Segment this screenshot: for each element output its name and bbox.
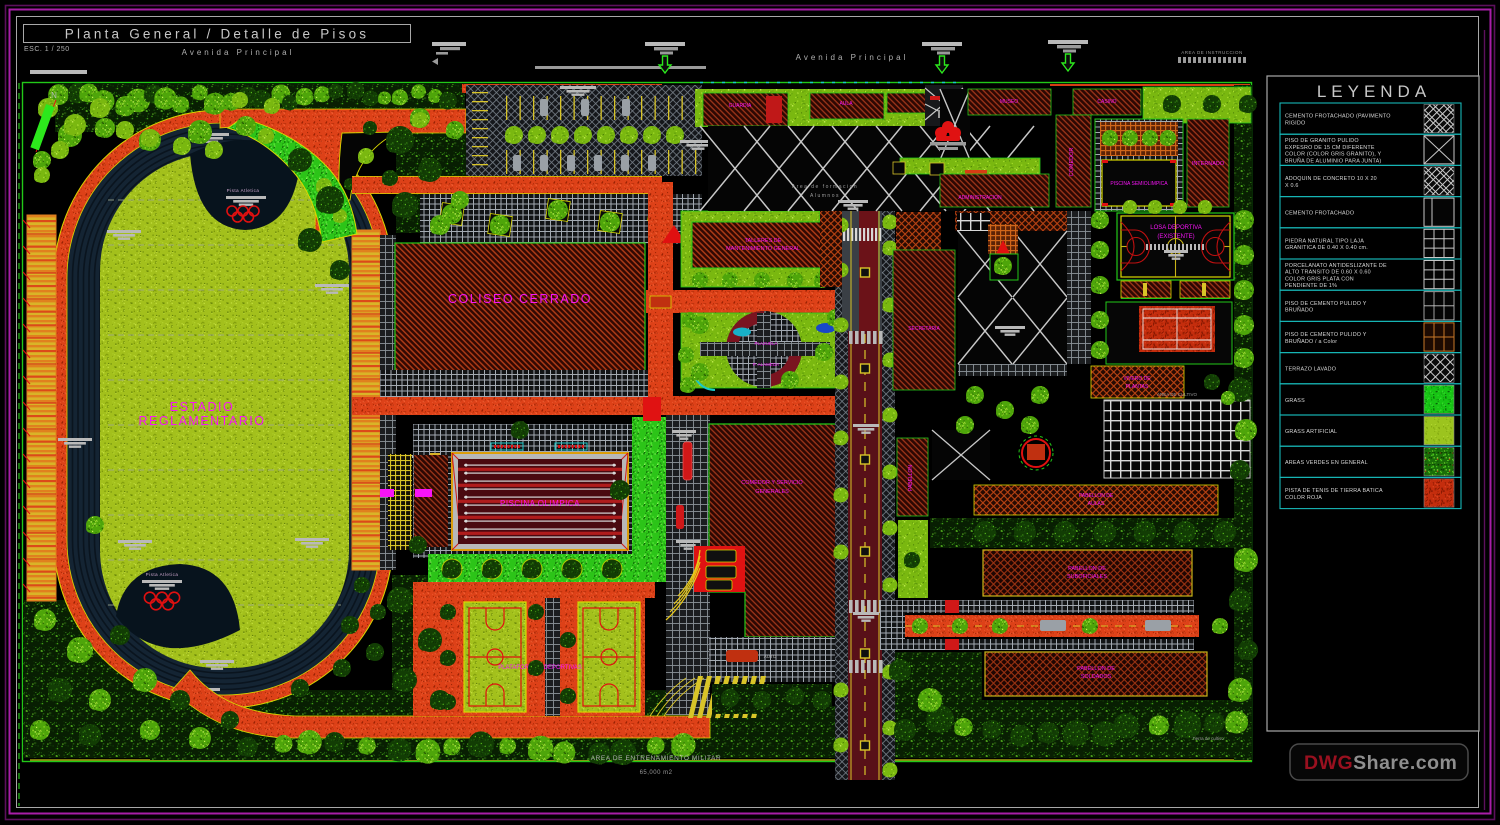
- svg-text:LOSA DEPORTIVA: LOSA DEPORTIVA: [1150, 225, 1201, 231]
- svg-text:EXPESRO DE 15 CM DIFERENTE: EXPESRO DE 15 CM DIFERENTE: [1285, 145, 1375, 151]
- svg-text:AULAS: AULAS: [1088, 501, 1105, 507]
- svg-text:CEMENTO FROTACHADO: CEMENTO FROTACHADO: [1285, 211, 1354, 217]
- svg-text:PISCINA SEMIOLIMPICA: PISCINA SEMIOLIMPICA: [1110, 181, 1168, 187]
- svg-text:Area de formacion: Area de formacion: [792, 184, 858, 190]
- svg-text:TALLERES DE: TALLERES DE: [745, 238, 782, 244]
- svg-text:Planta General / Detalle de Pi: Planta General / Detalle de Pisos: [65, 27, 369, 42]
- svg-text:PISCINA OLIMPICA: PISCINA OLIMPICA: [500, 499, 580, 508]
- svg-text:MANTENIMIENTO GENERAL: MANTENIMIENTO GENERAL: [726, 246, 800, 252]
- svg-text:CASINO: CASINO: [1097, 99, 1116, 105]
- svg-text:PISO DE CEMENTO PULIDO Y: PISO DE CEMENTO PULIDO Y: [1285, 301, 1367, 307]
- svg-text:MUSEO: MUSEO: [1000, 99, 1018, 105]
- svg-text:ADMINISTRACION: ADMINISTRACION: [958, 195, 1002, 201]
- svg-text:AUTO: AUTO: [764, 654, 777, 659]
- svg-text:GRANITICA DE 0.40 X 0.40 cm.: GRANITICA DE 0.40 X 0.40 cm.: [1285, 245, 1368, 251]
- svg-text:RIGIDO: RIGIDO: [1285, 120, 1305, 126]
- svg-text:PABELLON DE: PABELLON DE: [1068, 566, 1106, 572]
- svg-text:TERRAZO LAVADO: TERRAZO LAVADO: [1285, 367, 1336, 373]
- svg-text:X 0.6: X 0.6: [1285, 183, 1299, 189]
- svg-text:CEMENTO FROTACHADO (PAVIMENTO: CEMENTO FROTACHADO (PAVIMENTO: [1285, 114, 1391, 120]
- svg-text:BRUÑADO / a Color: BRUÑADO / a Color: [1285, 338, 1337, 345]
- svg-text:PLAZUELA: PLAZUELA: [754, 341, 777, 346]
- svg-text:GRASS: GRASS: [1285, 398, 1305, 404]
- svg-text:AREA DE INSTRUCCION: AREA DE INSTRUCCION: [1181, 50, 1243, 55]
- svg-text:ALTO TRANSITO DE 0.60 X 0.60: ALTO TRANSITO DE 0.60 X 0.60: [1285, 270, 1371, 276]
- svg-text:(EXISTENTE): (EXISTENTE): [1157, 234, 1194, 240]
- svg-text:COLOR ROJA: COLOR ROJA: [1285, 495, 1322, 501]
- svg-text:AREA DE ENTRENAMIENTO MILITAR: AREA DE ENTRENAMIENTO MILITAR: [591, 755, 722, 762]
- svg-text:PISTA DE TENIS DE TIERRA BATIC: PISTA DE TENIS DE TIERRA BATICA: [1285, 488, 1383, 494]
- svg-text:AREAS VERDES EN GENERAL: AREAS VERDES EN GENERAL: [1285, 460, 1368, 466]
- svg-text:COMEDOR: COMEDOR: [1069, 148, 1075, 177]
- svg-text:REGLAMENTARIO: REGLAMENTARIO: [139, 414, 266, 428]
- svg-text:AULA: AULA: [839, 101, 853, 107]
- svg-text:PABELLON DE: PABELLON DE: [1079, 493, 1114, 499]
- svg-text:LEYENDA: LEYENDA: [1317, 82, 1431, 101]
- svg-text:GENERALES: GENERALES: [755, 489, 789, 495]
- svg-text:BRUÑADO: BRUÑADO: [1285, 307, 1313, 314]
- svg-text:Pista Atletica: Pista Atletica: [146, 572, 179, 577]
- svg-text:PIEDRA NATURAL TIPO LAJA: PIEDRA NATURAL TIPO LAJA: [1285, 238, 1364, 244]
- svg-text:SUBOFICIALES: SUBOFICIALES: [1067, 574, 1107, 580]
- svg-text:Pista Atletica: Pista Atletica: [227, 188, 260, 193]
- svg-text:ADOQUIN DE CONCRETO 10 X 20: ADOQUIN DE CONCRETO 10 X 20: [1285, 176, 1377, 182]
- svg-text:Avenida Principal: Avenida Principal: [796, 53, 909, 62]
- svg-text:65,000 m2: 65,000 m2: [640, 770, 673, 776]
- svg-text:COLOR (COLOR GRIS GRANITO), Y: COLOR (COLOR GRIS GRANITO), Y: [1285, 152, 1382, 158]
- svg-text:PORCELANATO ANTIDESLIZANTE DE: PORCELANATO ANTIDESLIZANTE DE: [1285, 263, 1387, 269]
- svg-text:PLANTAS: PLANTAS: [1126, 384, 1149, 390]
- svg-text:PISO DE GRANITO PULIDO: PISO DE GRANITO PULIDO: [1285, 138, 1359, 144]
- svg-text:VIVERO DE: VIVERO DE: [1123, 376, 1151, 382]
- svg-text:PISO DE CEMENTO PULIDO Y: PISO DE CEMENTO PULIDO Y: [1285, 332, 1367, 338]
- svg-text:GUARDIA: GUARDIA: [729, 103, 752, 109]
- svg-text:COLISEO CERRADO: COLISEO CERRADO: [448, 292, 592, 306]
- svg-text:SECRETARIA: SECRETARIA: [908, 326, 940, 332]
- svg-text:SOLDADOS: SOLDADOS: [1081, 674, 1112, 680]
- svg-text:COMEDOR Y SERVICIO: COMEDOR Y SERVICIO: [741, 480, 803, 486]
- svg-text:Tierra de cultivo: Tierra de cultivo: [1192, 736, 1224, 741]
- svg-text:N: N: [51, 91, 57, 100]
- svg-text:P. ALAMEDA: P. ALAMEDA: [753, 362, 779, 367]
- svg-text:PABELLON DE: PABELLON DE: [1077, 666, 1115, 672]
- svg-text:PENDIENTE DE 1%: PENDIENTE DE 1%: [1285, 283, 1337, 289]
- svg-text:AREA DE CULTIVO: AREA DE CULTIVO: [1157, 392, 1197, 397]
- svg-text:BRUÑA DE ALUMINIO PARA JUNTA): BRUÑA DE ALUMINIO PARA JUNTA): [1285, 157, 1381, 164]
- svg-text:ESTADIO: ESTADIO: [170, 400, 234, 414]
- svg-text:INTERNADO: INTERNADO: [1192, 161, 1225, 167]
- svg-text:GRASS ARTIFICIAL: GRASS ARTIFICIAL: [1285, 429, 1337, 435]
- svg-text:ESC. 1 / 250: ESC. 1 / 250: [24, 46, 70, 53]
- svg-text:COLOR GRIS PLATA CON: COLOR GRIS PLATA CON: [1285, 276, 1354, 282]
- svg-text:Alumnos: Alumnos: [810, 193, 840, 199]
- svg-text:DWGShare.com: DWGShare.com: [1304, 752, 1457, 774]
- svg-text:Avenida Principal: Avenida Principal: [182, 48, 295, 57]
- svg-text:PABELLON: PABELLON: [908, 465, 914, 491]
